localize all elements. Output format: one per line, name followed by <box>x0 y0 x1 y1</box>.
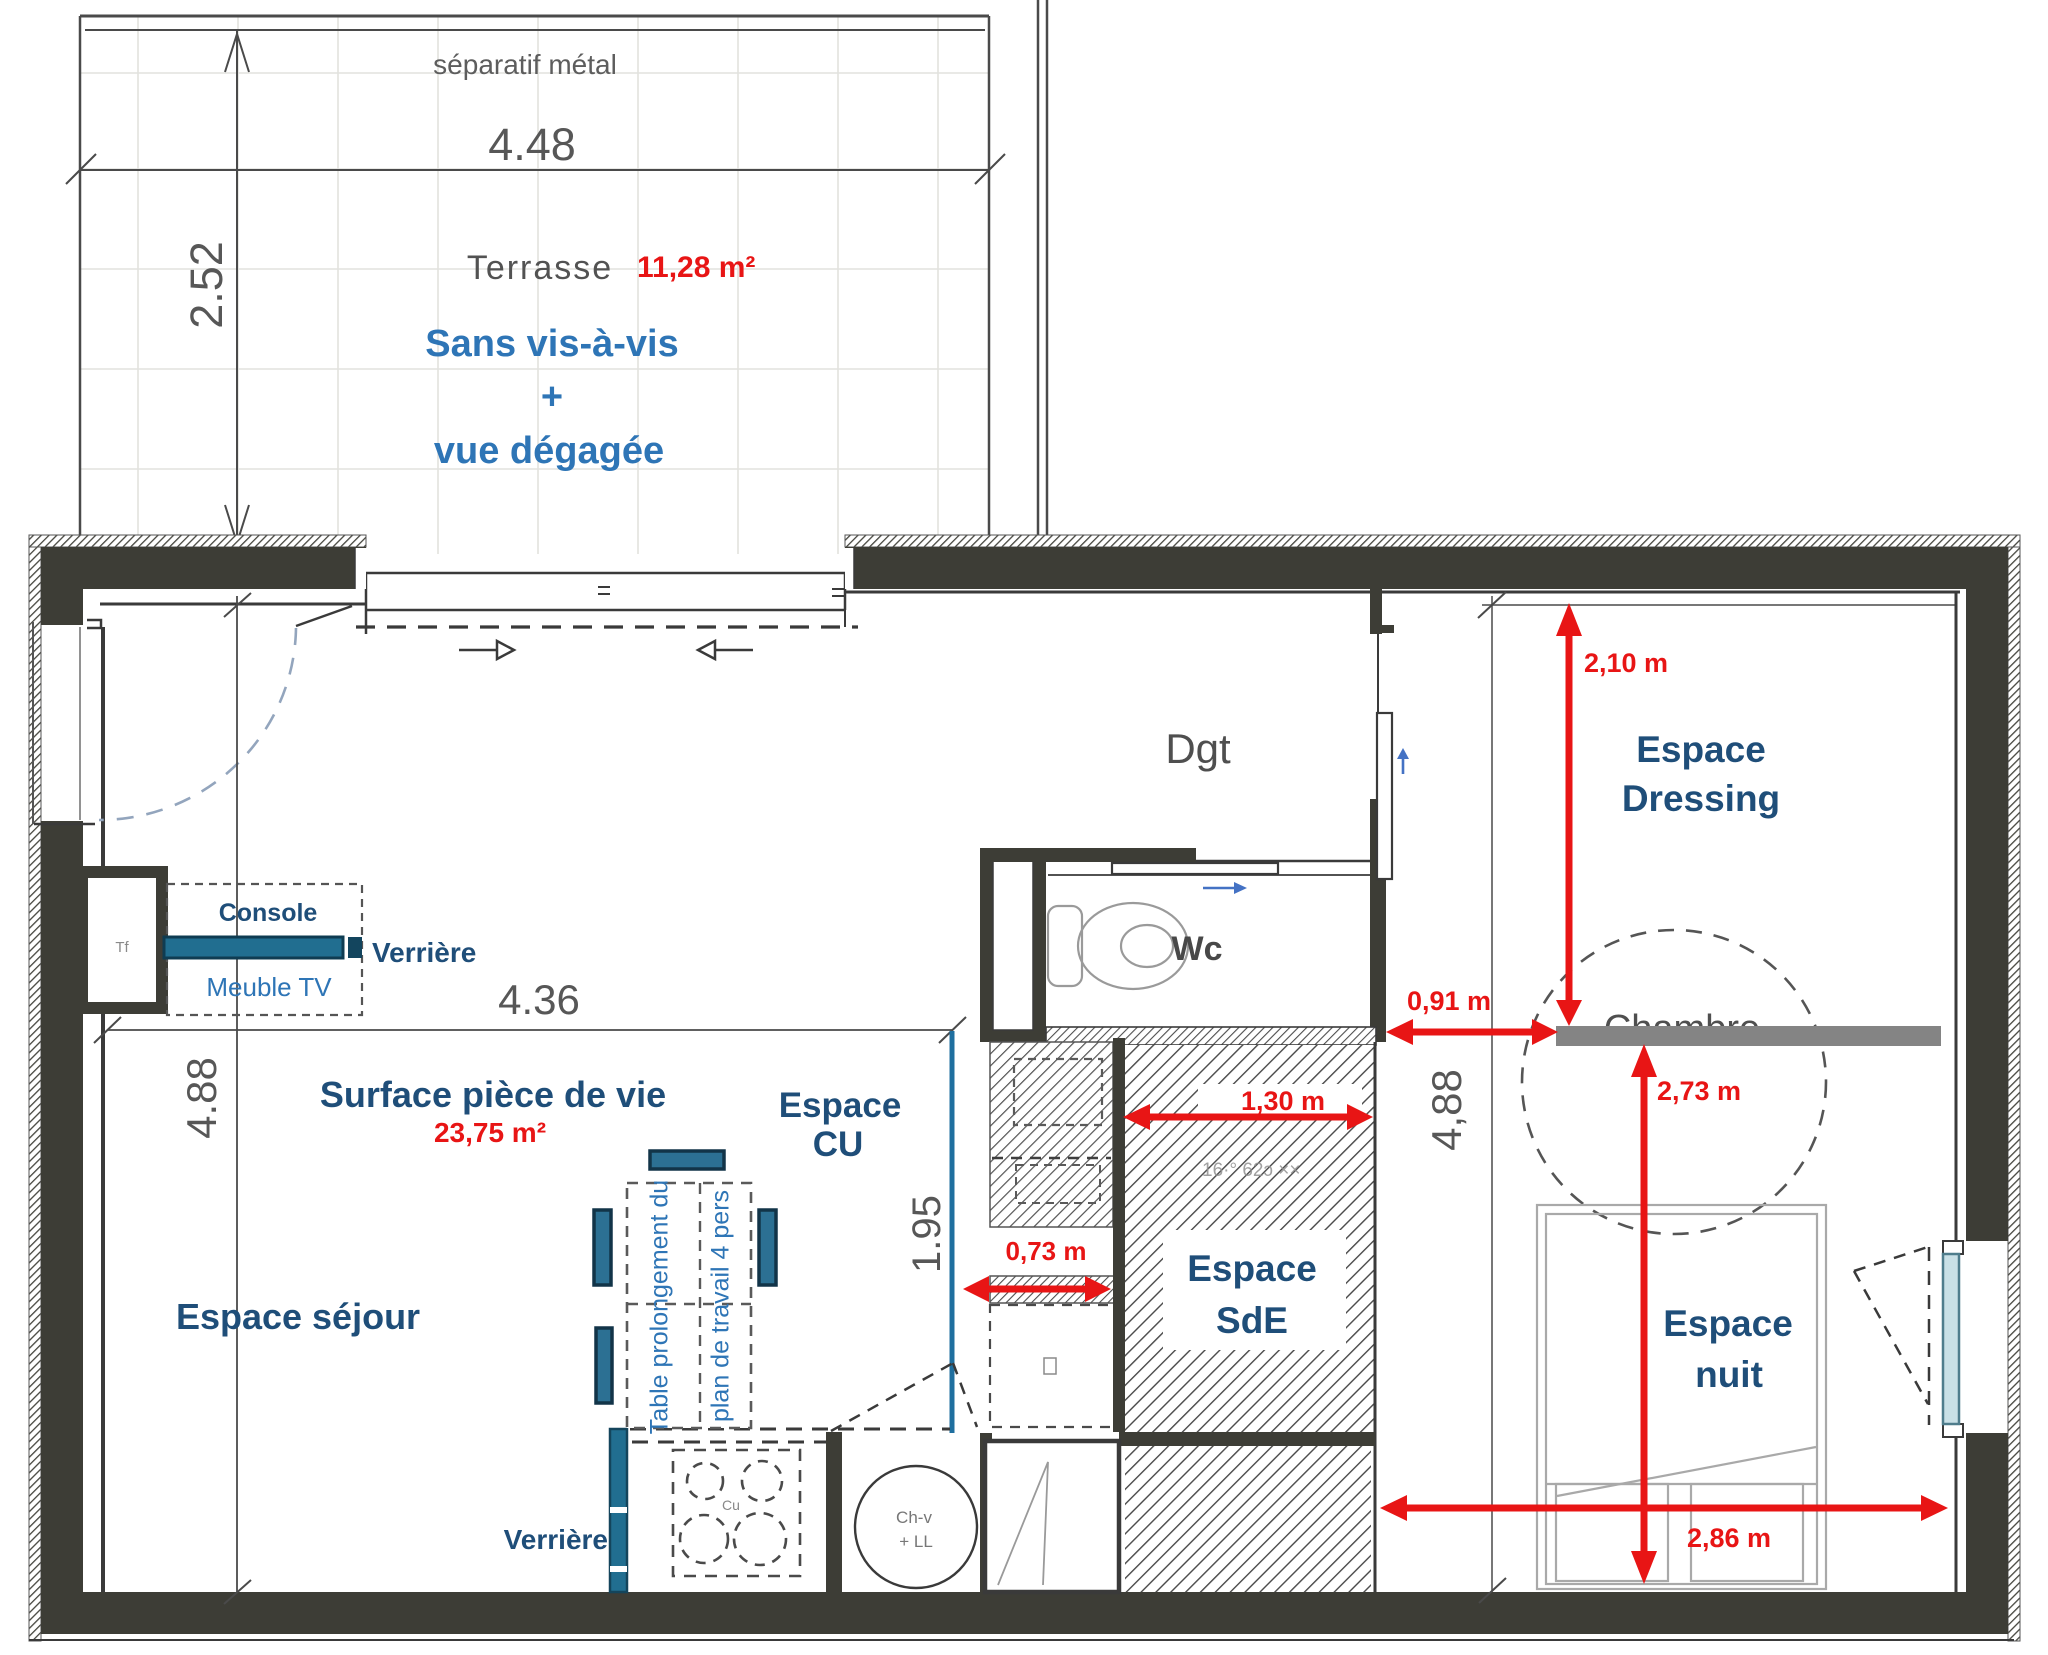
svg-text:Tf: Tf <box>115 939 129 956</box>
svg-text:2,86 m: 2,86 m <box>1687 1523 1771 1553</box>
svg-text:Terrasse: Terrasse <box>467 249 613 287</box>
svg-text:4,88: 4,88 <box>1423 1069 1470 1151</box>
svg-text:nuit: nuit <box>1695 1354 1763 1395</box>
svg-text:vue dégagée: vue dégagée <box>434 430 664 472</box>
svg-text:Wc: Wc <box>1172 930 1223 968</box>
svg-text:4.88: 4.88 <box>178 1057 225 1139</box>
svg-text:1,30 m: 1,30 m <box>1241 1086 1325 1116</box>
svg-text:Espace: Espace <box>1663 1303 1793 1344</box>
svg-text:0,73 m: 0,73 m <box>1006 1236 1087 1266</box>
svg-text:Ch-v: Ch-v <box>896 1508 932 1527</box>
svg-text:CU: CU <box>813 1125 864 1164</box>
svg-text:plan de travail 4 pers: plan de travail 4 pers <box>707 1190 735 1422</box>
svg-text:4.48: 4.48 <box>488 119 576 170</box>
svg-text:16·° 62ɔ ××: 16·° 62ɔ ×× <box>1202 1160 1300 1181</box>
svg-text:Espace: Espace <box>1187 1248 1317 1289</box>
svg-text:Meuble TV: Meuble TV <box>206 972 332 1002</box>
svg-text:+: + <box>541 376 563 418</box>
svg-text:Verrière: Verrière <box>372 937 476 968</box>
svg-text:2.52: 2.52 <box>181 241 232 329</box>
svg-text:Sans vis-à-vis: Sans vis-à-vis <box>425 323 678 365</box>
svg-text:2,10 m: 2,10 m <box>1584 648 1668 678</box>
svg-text:1.95: 1.95 <box>905 1195 949 1273</box>
svg-text:Console: Console <box>219 899 318 927</box>
svg-text:Espace: Espace <box>779 1086 902 1125</box>
svg-text:0,91 m: 0,91 m <box>1407 986 1491 1016</box>
svg-text:Surface pièce de vie: Surface pièce de vie <box>320 1074 666 1115</box>
svg-text:Dressing: Dressing <box>1622 778 1780 819</box>
svg-text:4.36: 4.36 <box>498 976 580 1023</box>
svg-text:Cu: Cu <box>722 1497 740 1513</box>
svg-text:séparatif métal: séparatif métal <box>433 49 617 80</box>
svg-text:SdE: SdE <box>1216 1300 1288 1341</box>
svg-text:Table prolongement du: Table prolongement du <box>646 1180 674 1434</box>
svg-text:23,75 m²: 23,75 m² <box>434 1117 546 1148</box>
svg-text:2,73 m: 2,73 m <box>1657 1076 1741 1106</box>
svg-text:Espace: Espace <box>1636 729 1766 770</box>
svg-text:11,28 m²: 11,28 m² <box>637 251 755 284</box>
svg-text:Dgt: Dgt <box>1165 725 1231 772</box>
svg-text:Espace séjour: Espace séjour <box>176 1296 420 1337</box>
svg-text:Verrière: Verrière <box>504 1524 608 1555</box>
svg-text:+ LL: + LL <box>899 1532 933 1551</box>
